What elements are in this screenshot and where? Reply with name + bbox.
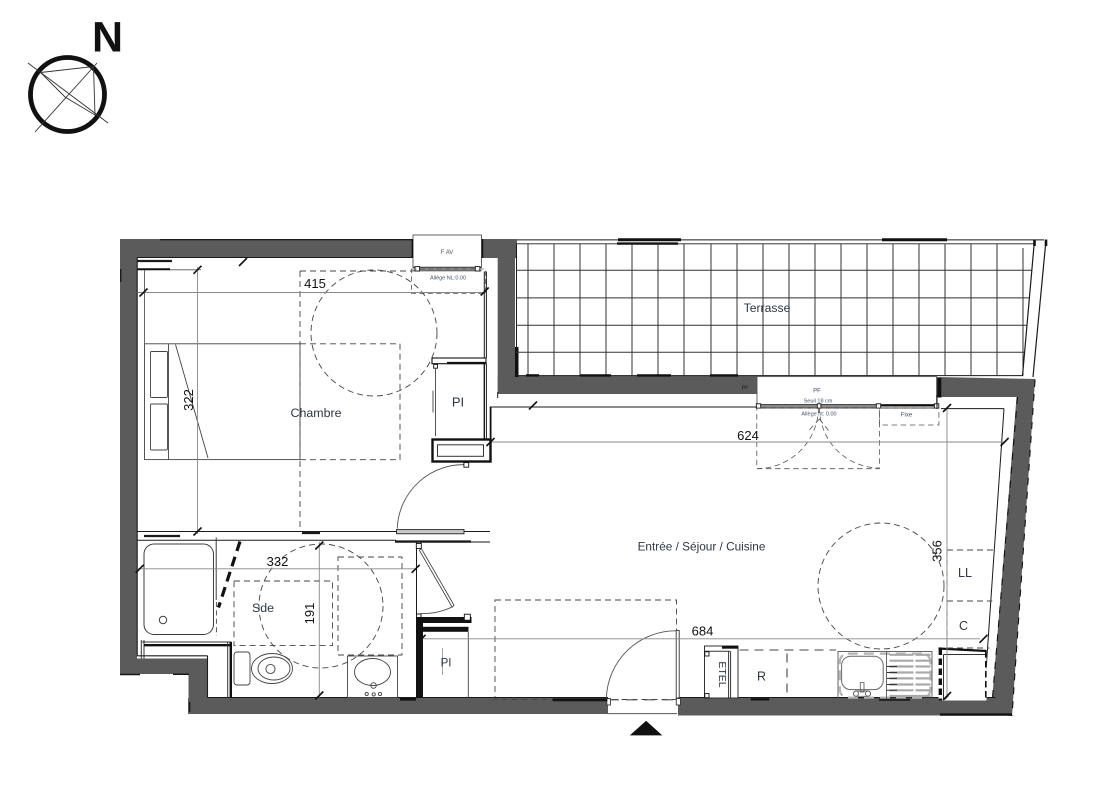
svg-text:624: 624: [737, 428, 759, 443]
svg-text:356: 356: [930, 540, 945, 562]
svg-text:Fixe: Fixe: [901, 413, 913, 419]
svg-text:F AV: F AV: [441, 250, 454, 256]
svg-text:332: 332: [267, 554, 289, 569]
svg-text:Sde: Sde: [252, 601, 274, 615]
svg-text:322: 322: [181, 389, 196, 411]
svg-text:N: N: [92, 14, 123, 62]
svg-text:PF: PF: [741, 386, 749, 392]
svg-text:R: R: [757, 670, 766, 684]
svg-text:Allège NL:0.00: Allège NL:0.00: [430, 276, 466, 282]
svg-text:PI: PI: [452, 395, 464, 410]
svg-text:191: 191: [302, 603, 317, 625]
svg-text:PF: PF: [813, 389, 821, 395]
svg-text:PI: PI: [441, 658, 452, 670]
svg-text:684: 684: [692, 624, 714, 639]
svg-text:Entrée / Séjour / Cuisine: Entrée / Séjour / Cuisine: [638, 540, 766, 554]
svg-text:Allège ht: 0.00: Allège ht: 0.00: [801, 412, 836, 418]
svg-text:415: 415: [304, 276, 326, 291]
svg-text:Terrasse: Terrasse: [744, 301, 791, 315]
svg-text:ETEL: ETEL: [716, 661, 728, 687]
svg-text:C: C: [959, 619, 968, 633]
svg-text:LL: LL: [958, 566, 972, 580]
svg-text:Chambre: Chambre: [291, 406, 342, 420]
